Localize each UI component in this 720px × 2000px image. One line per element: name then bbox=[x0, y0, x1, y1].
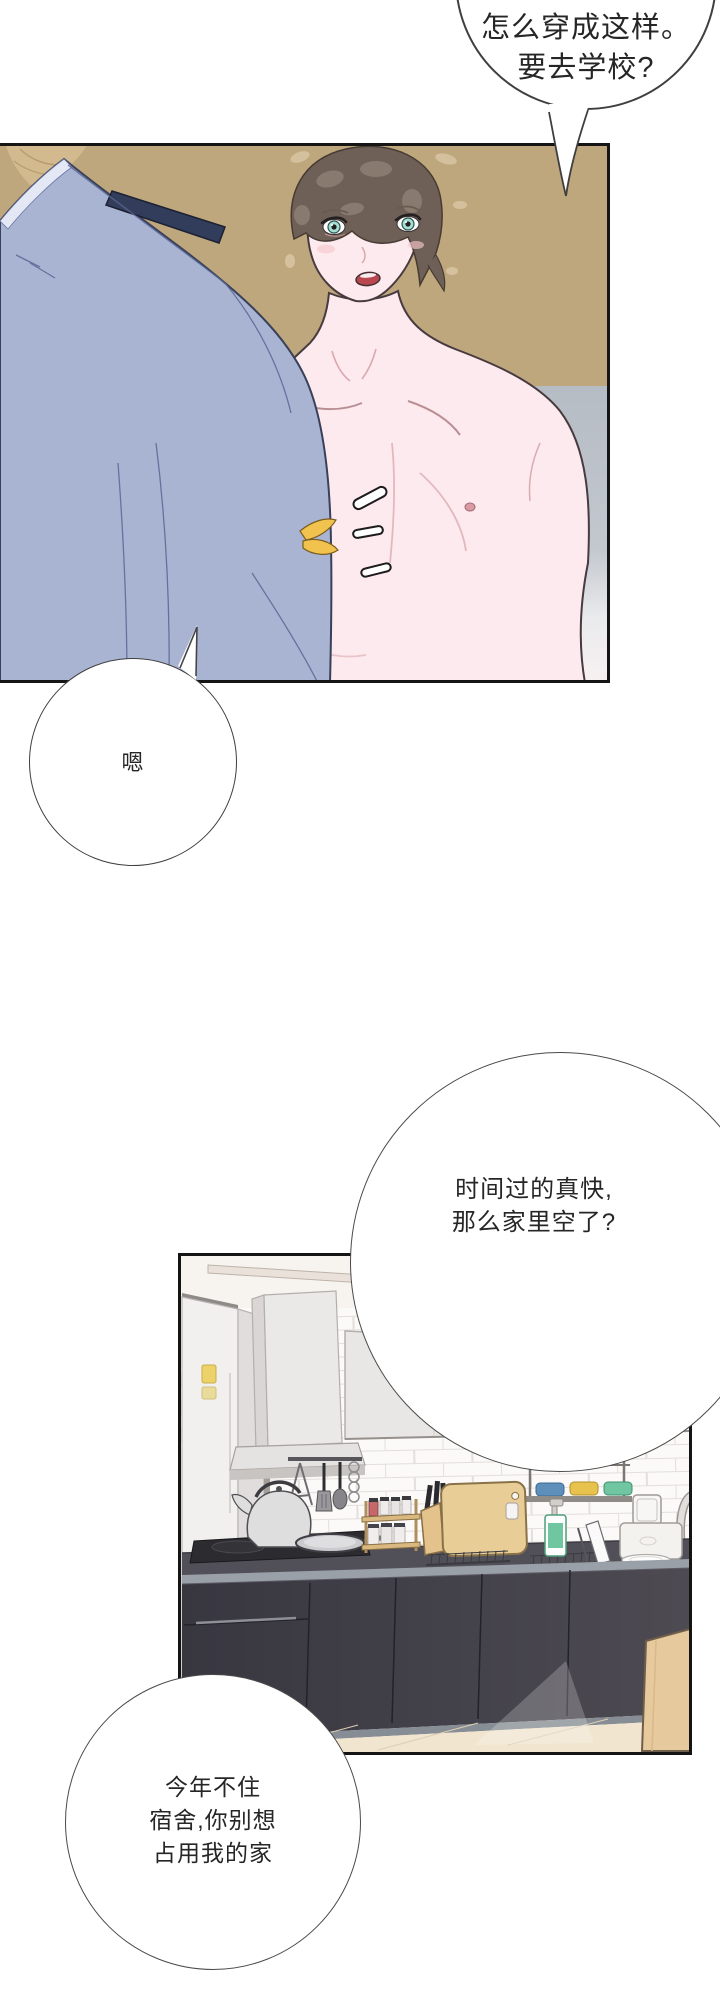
panel-bedroom-illustration bbox=[0, 143, 610, 683]
bowl-green bbox=[604, 1482, 632, 1495]
spoon-head bbox=[333, 1489, 347, 1509]
panel-bedroom-scene bbox=[0, 143, 610, 683]
nipple bbox=[465, 503, 475, 511]
speech-line: 要去学校? bbox=[457, 48, 715, 88]
fridge-sticker bbox=[202, 1365, 216, 1383]
speech-line: 宿舍,你别想 bbox=[66, 1804, 360, 1837]
right-blush bbox=[408, 241, 424, 249]
speech-line: 今年不住 bbox=[66, 1771, 360, 1804]
speech-line: 时间过的真快, bbox=[325, 1173, 720, 1206]
comic-page: { "page": { "kind": "webtoon-comic-page"… bbox=[0, 0, 720, 2000]
speech-line: 那么家里空了? bbox=[325, 1206, 720, 1239]
speech-bubble-top: 怎么穿成这样。 要去学校? bbox=[455, 0, 717, 110]
speech-line: 嗯 bbox=[30, 749, 236, 777]
spice-jars-bottom bbox=[368, 1523, 405, 1545]
bowl-yellow bbox=[570, 1482, 598, 1495]
spatula-head bbox=[316, 1491, 332, 1511]
speech-line: 怎么穿成这样。 bbox=[457, 8, 715, 48]
bowl-blue bbox=[536, 1483, 564, 1496]
speech-bubble-bottom: 今年不住 宿舍,你别想 占用我的家 bbox=[65, 1674, 361, 1970]
speech-bubble-reply: 嗯 bbox=[29, 658, 237, 866]
speech-line: 占用我的家 bbox=[66, 1837, 360, 1870]
fridge-sticker-2 bbox=[202, 1387, 216, 1399]
right-eye bbox=[396, 215, 420, 232]
board-hook bbox=[506, 1503, 518, 1519]
chair bbox=[642, 1629, 690, 1751]
shelf-board bbox=[524, 1496, 632, 1502]
left-blush bbox=[317, 245, 335, 254]
